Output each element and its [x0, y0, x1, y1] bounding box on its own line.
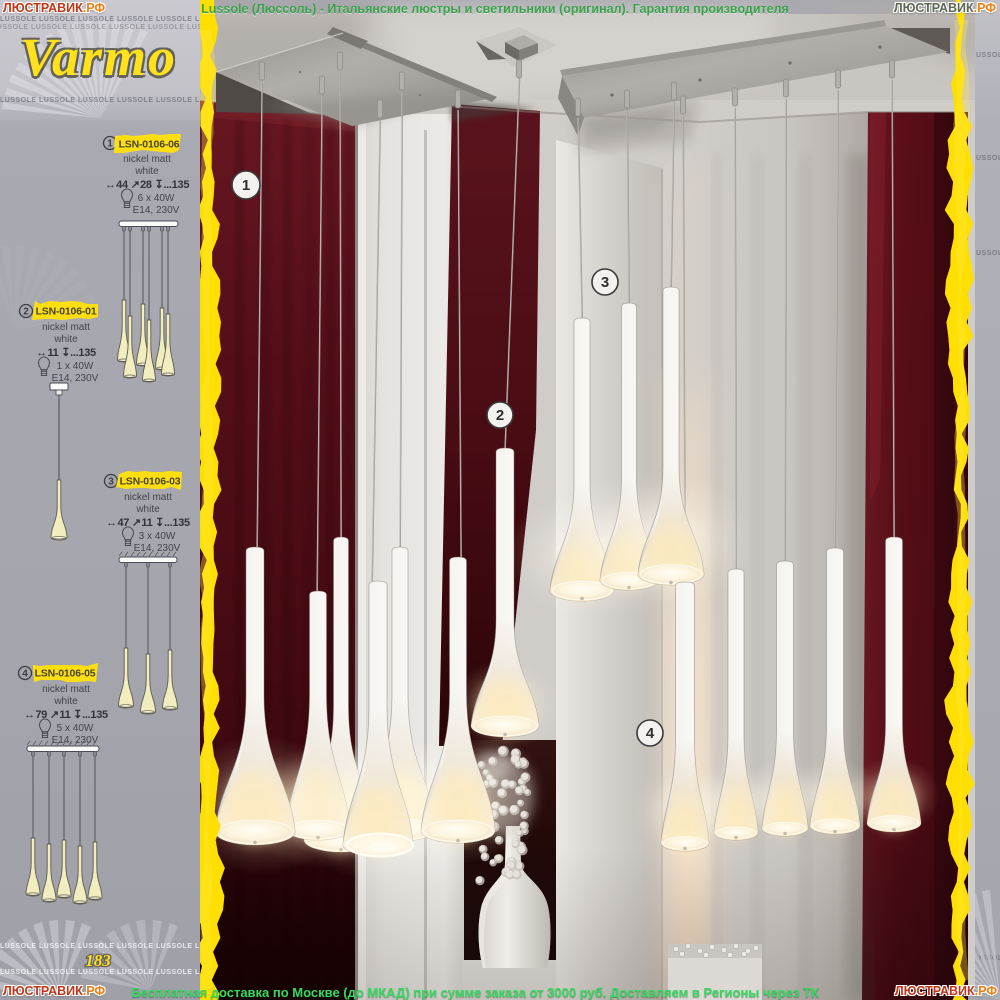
svg-text:4: 4 [22, 669, 28, 680]
svg-text:1 x 40W: 1 x 40W [57, 361, 94, 372]
svg-text:E14, 230V: E14, 230V [133, 205, 180, 216]
svg-text:1: 1 [242, 177, 250, 194]
svg-text:white: white [135, 504, 160, 515]
svg-text:nickel matt: nickel matt [42, 322, 90, 333]
svg-text:4: 4 [646, 725, 655, 742]
svg-text:↔ 47 ↗ 11 ↧...135: ↔ 47 ↗ 11 ↧...135 [106, 517, 190, 529]
svg-text:E14, 230V: E14, 230V [52, 373, 99, 384]
svg-text:nickel matt: nickel matt [42, 684, 90, 695]
svg-text:nickel matt: nickel matt [124, 492, 172, 503]
svg-text:LSN-0106-05: LSN-0106-05 [35, 668, 96, 680]
svg-text:2: 2 [496, 407, 504, 424]
svg-text:6 x 40W: 6 x 40W [138, 193, 175, 204]
svg-text:LSN-0106-03: LSN-0106-03 [120, 476, 181, 488]
svg-text:white: white [134, 166, 159, 177]
svg-text:LSN-0106-06: LSN-0106-06 [119, 139, 180, 151]
svg-text:LSN-0106-01: LSN-0106-01 [36, 306, 97, 318]
svg-text:E14, 230V: E14, 230V [134, 543, 181, 554]
svg-text:5 x 40W: 5 x 40W [57, 723, 94, 734]
svg-text:3 x 40W: 3 x 40W [139, 531, 176, 542]
svg-text:3: 3 [108, 477, 114, 488]
svg-text:183: 183 [85, 951, 111, 970]
svg-text:1: 1 [107, 139, 113, 150]
svg-text:↔ 79 ↗ 11 ↧...135: ↔ 79 ↗ 11 ↧...135 [24, 709, 108, 721]
svg-text:↔ 44 ↗ 28 ↧...135: ↔ 44 ↗ 28 ↧...135 [105, 179, 189, 191]
svg-text:white: white [53, 334, 78, 345]
svg-text:nickel matt: nickel matt [123, 154, 171, 165]
svg-text:white: white [53, 696, 78, 707]
svg-text:3: 3 [601, 274, 609, 291]
svg-text:2: 2 [23, 307, 29, 318]
